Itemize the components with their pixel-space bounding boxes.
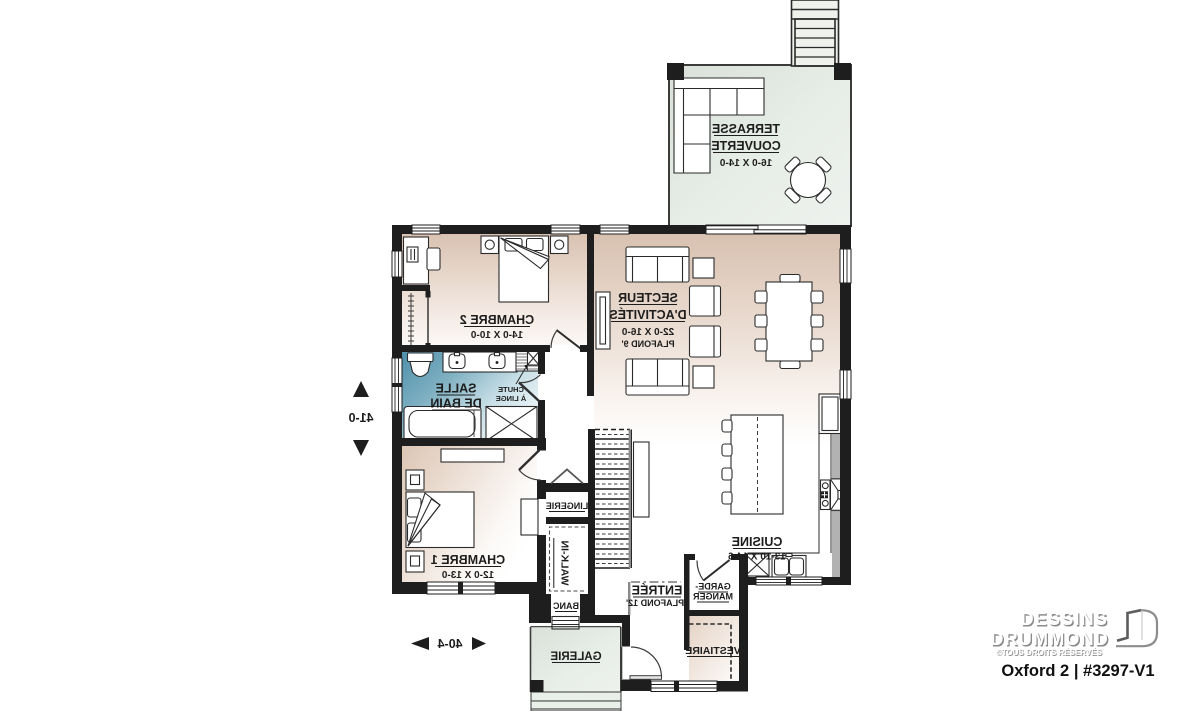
svg-text:40-4: 40-4 [437,637,462,651]
svg-text:D'ACTIVITÉS: D'ACTIVITÉS [609,307,686,322]
svg-text:ENTRÉE: ENTRÉE [632,583,683,598]
svg-text:Oxford 2 | #3297-V1: Oxford 2 | #3297-V1 [1001,662,1154,680]
svg-text:SECTEUR: SECTEUR [618,291,678,305]
svg-text:CHUTE: CHUTE [498,385,524,394]
svg-text:DE BAIN: DE BAIN [430,397,481,411]
svg-text:MANGER: MANGER [693,592,733,602]
svg-text:41-0: 41-0 [348,411,373,425]
svg-text:PLAFOND 9': PLAFOND 9' [621,339,674,349]
svg-text:PLAFOND 12': PLAFOND 12' [626,598,684,608]
svg-text:LINGERIE: LINGERIE [546,501,589,511]
svg-text:À LINGE: À LINGE [496,394,526,403]
svg-text:13-10 X 14-6: 13-10 X 14-6 [728,552,786,563]
svg-text:GARDE-: GARDE- [695,582,731,592]
svg-text:DRUMMOND: DRUMMOND [990,629,1109,649]
svg-text:CHAMBRE 2: CHAMBRE 2 [460,313,534,327]
svg-text:12-0 X 13-0: 12-0 X 13-0 [441,570,494,581]
svg-text:VESTIAIRE: VESTIAIRE [685,645,740,657]
svg-text:CUISINE: CUISINE [732,535,783,549]
svg-text:SALLE: SALLE [436,382,477,396]
svg-text:GALERIE: GALERIE [550,651,601,663]
svg-text:COUVERTE: COUVERTE [711,139,780,153]
svg-text:WALK-IN: WALK-IN [559,541,571,586]
svg-text:14-0 X 10-0: 14-0 X 10-0 [470,330,523,341]
svg-text:22-0 X 16-0: 22-0 X 16-0 [621,327,674,338]
svg-text:BANC: BANC [553,601,579,611]
svg-text:©TOUS DROITS RÉSERVÉS: ©TOUS DROITS RÉSERVÉS [996,648,1103,657]
svg-text:DESSINS: DESSINS [1021,609,1108,629]
svg-text:16-0 X 14-0: 16-0 X 14-0 [719,158,772,169]
svg-text:CHAMBRE 1: CHAMBRE 1 [431,553,505,567]
svg-text:TERRASSE: TERRASSE [712,122,780,136]
